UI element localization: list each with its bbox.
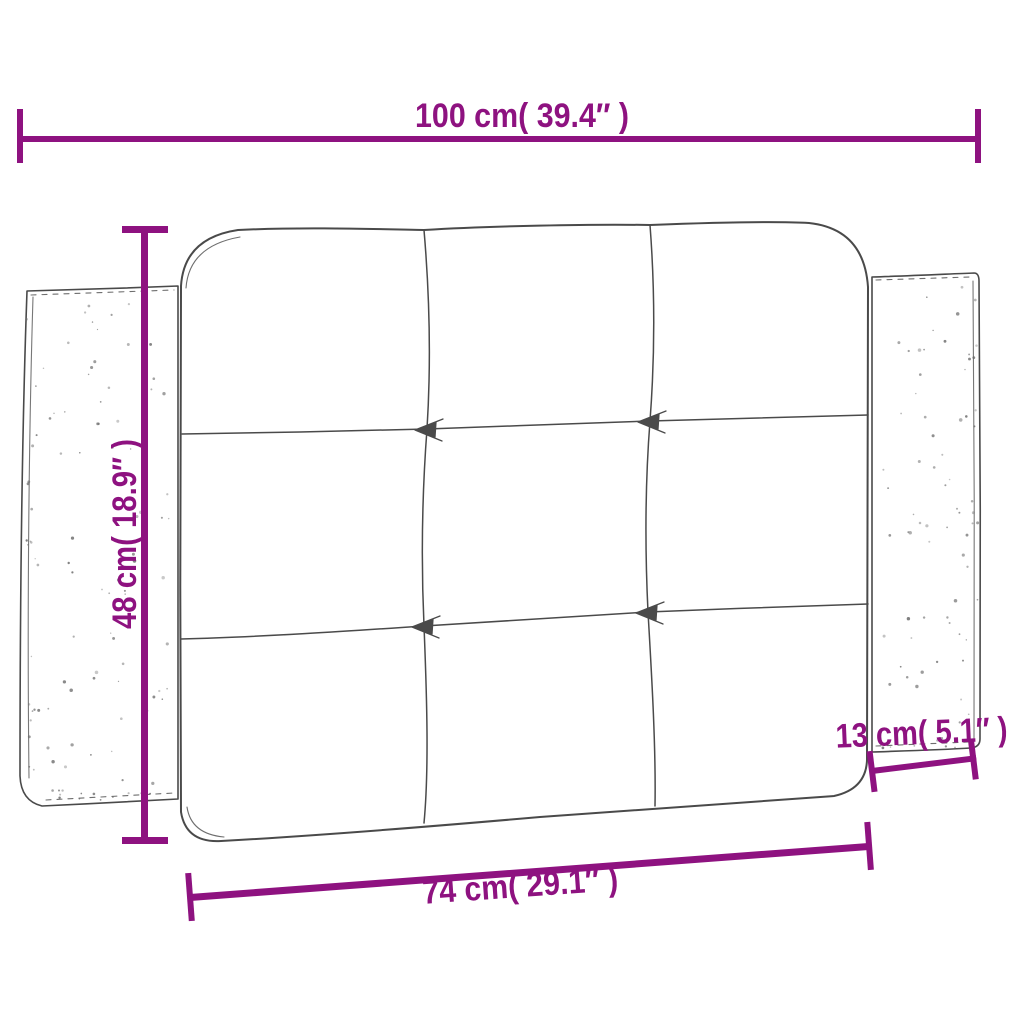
speckle-dot <box>907 617 910 620</box>
speckle-dot <box>887 487 889 489</box>
speckle-dot <box>28 766 30 768</box>
speckle-dot <box>918 460 921 463</box>
speckle-dot <box>79 452 81 454</box>
speckle-dot <box>152 696 155 699</box>
speckle-dot <box>53 413 54 414</box>
right-wing-outline <box>872 273 980 752</box>
speckle-dot <box>949 622 951 624</box>
speckle-dot <box>64 765 67 768</box>
speckle-dot <box>897 341 900 344</box>
speckle-dot <box>166 688 168 690</box>
cushion <box>180 222 868 841</box>
speckle-dot <box>975 344 978 347</box>
speckle-dot <box>972 356 975 359</box>
speckle-dot <box>73 635 75 637</box>
speckle-dot <box>112 797 113 798</box>
dim-line <box>17 136 981 142</box>
speckle-dot <box>949 479 951 481</box>
speckle-dot <box>69 688 73 692</box>
speckle-dot <box>93 677 96 680</box>
speckle-dot <box>121 779 123 781</box>
speckle-dot <box>965 415 968 418</box>
speckle-dot <box>80 793 82 795</box>
speckle-dot <box>46 746 49 749</box>
speckle-dot <box>882 469 884 471</box>
speckle-dot <box>108 386 111 389</box>
speckle-dot <box>49 417 52 420</box>
speckle-dot <box>110 632 111 633</box>
speckle-dot <box>128 303 130 305</box>
speckle-dot <box>64 411 65 412</box>
dim-line <box>872 755 977 774</box>
speckle-dot <box>888 534 891 537</box>
speckle-dot <box>919 522 922 525</box>
speckle-dot <box>111 751 113 753</box>
speckle-dot <box>972 511 975 514</box>
dim-label-side-width: 13 cm( 5.1″ ) <box>835 710 1008 755</box>
speckle-dot <box>149 343 152 346</box>
speckle-dot <box>88 374 90 376</box>
speckle-dot <box>112 637 115 640</box>
speckle-dot <box>961 286 964 289</box>
dim-label-height: 48 cm( 18.9″ ) <box>106 439 144 629</box>
speckle-dot <box>71 536 74 539</box>
cushion-outline <box>180 222 868 841</box>
speckle-dot <box>908 350 910 352</box>
speckle-dot <box>88 305 91 308</box>
speckle-dot <box>90 754 92 756</box>
speckle-dot <box>944 340 947 343</box>
speckle-dot <box>93 360 96 363</box>
right-wing <box>872 273 980 752</box>
speckle-dot <box>959 633 961 635</box>
speckle-dot <box>959 418 963 422</box>
headboard-dimension-diagram: 100 cm( 39.4″ ) 48 cm( 18.9″ ) 74 cm( 29… <box>0 0 1024 1024</box>
speckle-dot <box>944 484 946 486</box>
speckle-dot <box>100 799 102 801</box>
speckle-dot <box>933 466 936 469</box>
dim-label-inner-width: 74 cm( 29.1″ ) <box>421 860 619 912</box>
speckle-dot <box>900 413 902 415</box>
speckle-dot <box>976 521 979 524</box>
speckle-dot <box>150 388 152 390</box>
speckle-dot <box>43 368 44 369</box>
speckle-dot <box>973 425 975 427</box>
speckle-dot <box>79 798 81 800</box>
speckle-dot <box>946 616 948 618</box>
speckle-dot <box>28 703 30 705</box>
speckle-dot <box>954 599 958 603</box>
speckle-dot <box>932 434 935 437</box>
speckle-dot <box>915 685 918 688</box>
speckle-dot <box>972 522 974 524</box>
speckle-dot <box>33 709 35 711</box>
speckle-dot <box>97 329 98 330</box>
speckle-dot <box>68 562 70 564</box>
speckle-dot <box>915 393 916 394</box>
speckle-dot <box>84 311 86 313</box>
speckle-dot <box>883 635 886 638</box>
speckle-dot <box>941 454 943 456</box>
speckle-dot <box>59 794 61 796</box>
speckle-dot <box>968 358 971 361</box>
speckle-dot <box>33 769 35 771</box>
speckle-dot <box>166 493 168 495</box>
speckle-dot <box>47 708 49 710</box>
speckle-dot <box>161 517 163 519</box>
speckle-dot <box>127 343 130 346</box>
speckle-dot <box>918 348 922 352</box>
speckle-dot <box>964 369 965 370</box>
speckle-dot <box>37 564 40 567</box>
speckle-dot <box>158 690 160 692</box>
speckle-dot <box>30 719 32 721</box>
speckle-dot <box>31 656 32 657</box>
speckle-dot <box>30 541 32 543</box>
speckle-dot <box>152 377 155 380</box>
speckle-dot <box>70 743 73 746</box>
speckle-dot <box>95 671 99 675</box>
speckle-dot <box>36 434 38 436</box>
speckle-dot <box>921 671 924 674</box>
speckle-dot <box>63 680 66 683</box>
speckle-dot <box>906 676 909 679</box>
speckle-dot <box>25 318 28 321</box>
speckle-dot <box>966 534 969 537</box>
speckle-dot <box>974 299 977 302</box>
speckle-dot <box>161 576 164 579</box>
speckle-dot <box>60 452 62 454</box>
speckle-dot <box>101 589 103 591</box>
speckle-dot <box>960 699 962 701</box>
speckle-dot <box>162 698 164 700</box>
speckle-dot <box>946 527 948 529</box>
left-wing-outline <box>20 286 178 806</box>
speckle-dot <box>92 321 93 322</box>
speckle-dot <box>977 599 979 601</box>
speckle-dot <box>71 571 73 573</box>
speckle-dot <box>128 792 130 794</box>
speckle-dot <box>90 366 93 369</box>
speckle-dot <box>966 639 967 640</box>
speckle-dot <box>900 666 902 668</box>
speckle-dot <box>936 661 938 663</box>
speckle-dot <box>888 683 891 686</box>
speckle-dot <box>27 544 29 546</box>
speckle-dot <box>93 793 96 796</box>
speckle-dot <box>122 662 125 665</box>
speckle-dot <box>962 554 965 557</box>
speckle-dot <box>907 531 909 533</box>
speckle-dot <box>149 793 151 795</box>
speckle-dot <box>30 508 33 511</box>
speckle-dot <box>151 782 154 785</box>
dim-label-total-width: 100 cm( 39.4″ ) <box>415 97 629 135</box>
speckle-dot <box>67 342 70 345</box>
speckle-dot <box>925 524 928 527</box>
speckle-dot <box>32 710 34 712</box>
speckle-dot <box>111 314 113 316</box>
speckle-dot <box>51 789 54 792</box>
speckle-dot <box>958 512 960 514</box>
speckle-dot <box>100 401 102 403</box>
speckle-dot <box>971 500 974 503</box>
speckle-dot <box>956 508 958 510</box>
left-wing <box>20 286 178 806</box>
speckle-dot <box>962 660 964 662</box>
speckle-dot <box>61 789 63 791</box>
speckle-dot <box>96 422 99 425</box>
dimension-total-width: 100 cm( 39.4″ ) <box>17 97 981 163</box>
speckle-dot <box>35 558 36 559</box>
speckle-dot <box>166 642 169 645</box>
speckle-dot <box>926 296 928 298</box>
speckle-dot <box>913 514 915 516</box>
speckle-dot <box>928 541 930 543</box>
speckle-dot <box>162 392 165 395</box>
speckle-dot <box>966 566 968 568</box>
speckle-dot <box>51 760 54 763</box>
speckle-dot <box>26 539 28 541</box>
speckle-dot <box>31 444 34 447</box>
speckle-dot <box>910 637 912 639</box>
speckle-dot <box>968 353 970 355</box>
speckle-dot <box>37 709 40 712</box>
speckle-dot <box>58 789 60 791</box>
speckle-dot <box>28 735 31 738</box>
speckle-dot <box>923 616 925 618</box>
speckle-dot <box>35 385 37 387</box>
speckle-dot <box>58 797 60 799</box>
speckle-dot <box>919 373 922 376</box>
speckle-dot <box>118 681 119 682</box>
speckle-dot <box>27 480 30 483</box>
speckle-dot <box>956 312 960 316</box>
speckle-dot <box>924 416 927 419</box>
speckle-dot <box>932 330 933 331</box>
speckle-dot <box>116 420 119 423</box>
speckle-dot <box>975 409 977 411</box>
speckle-dot <box>923 349 925 351</box>
speckle-dot <box>168 518 169 519</box>
speckle-dot <box>120 717 123 720</box>
